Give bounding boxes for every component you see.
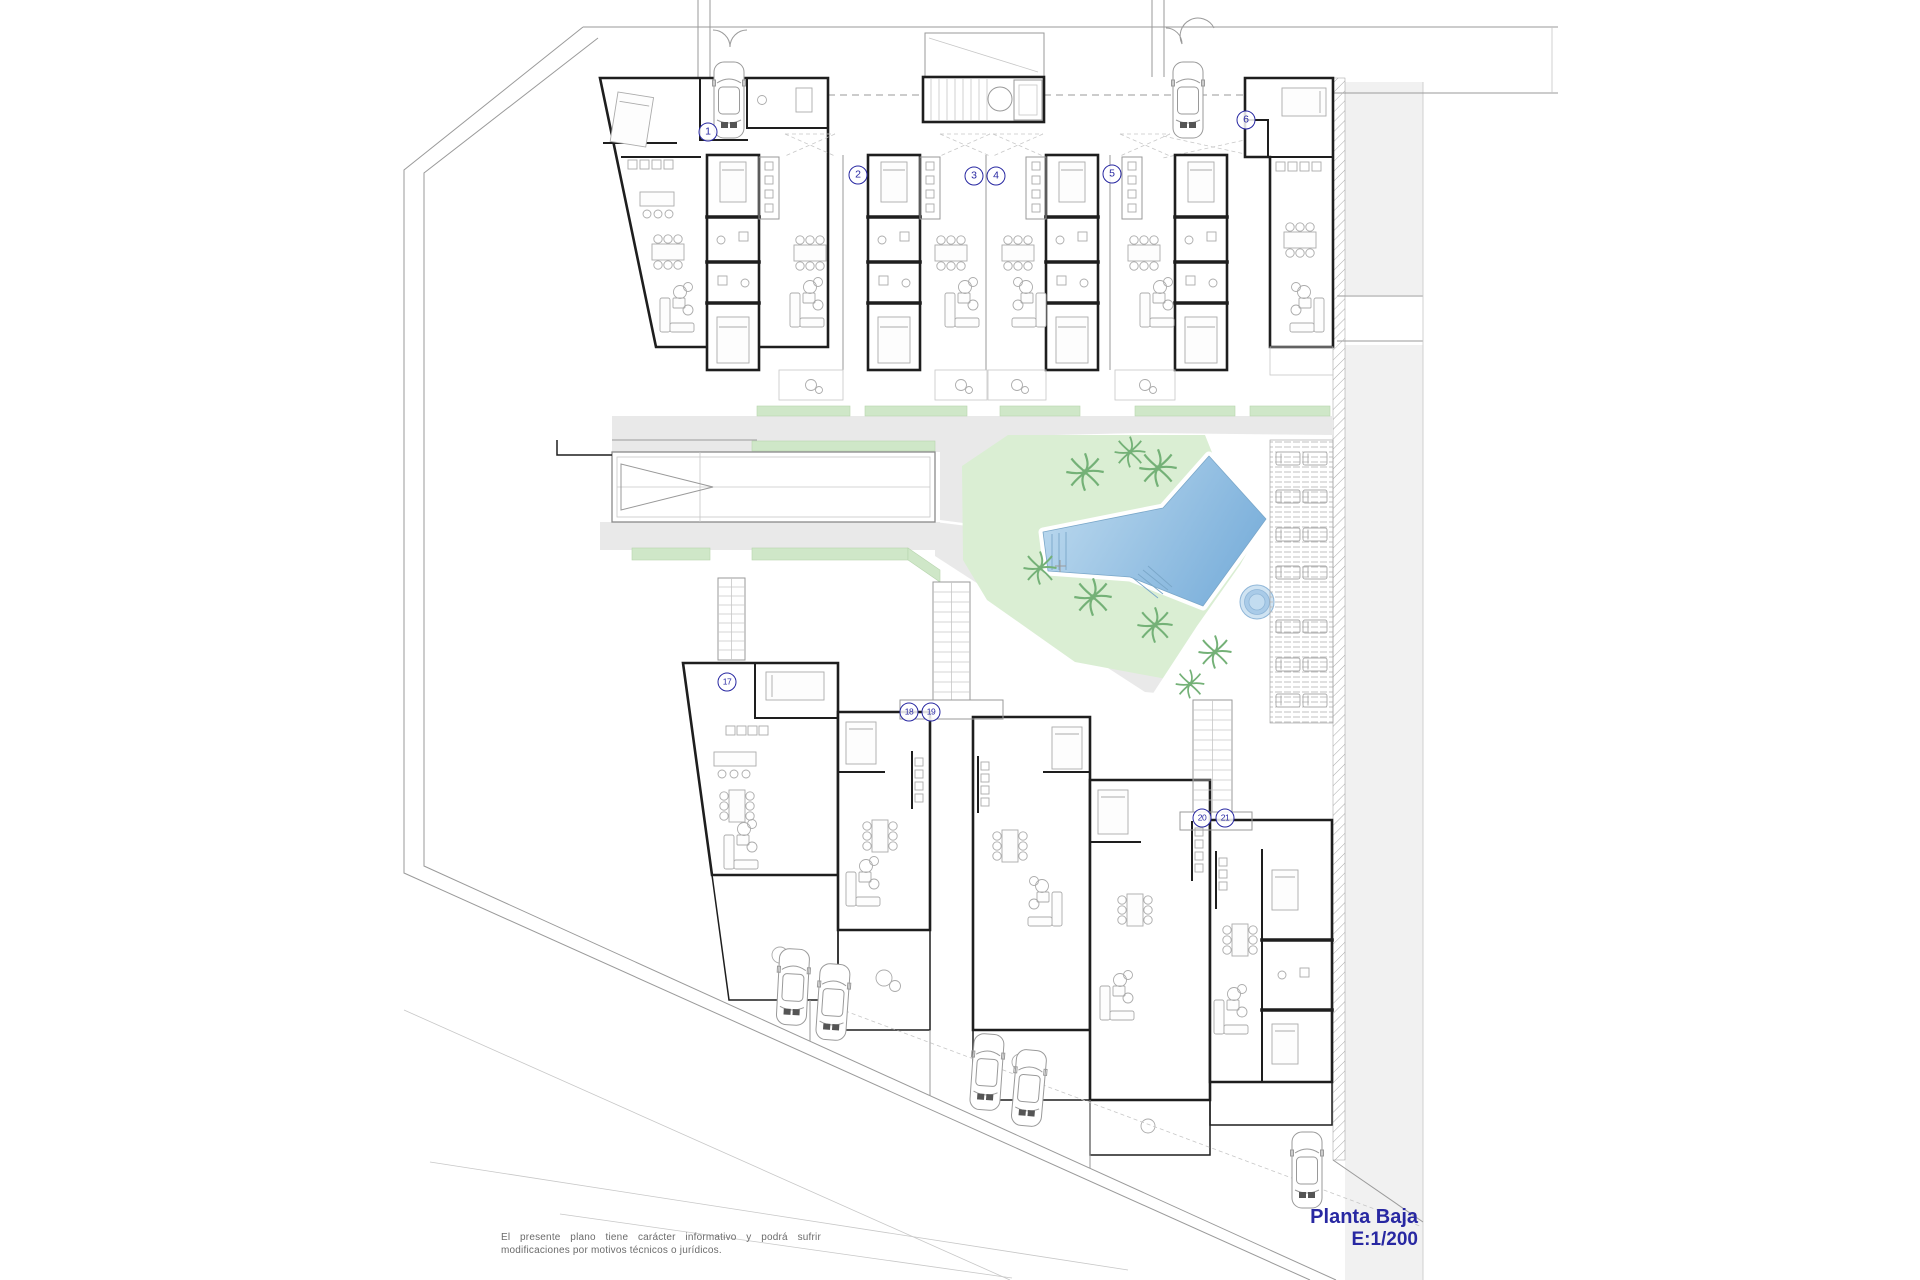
site-plan-drawing: [0, 0, 1920, 1280]
unit-20: [1090, 780, 1210, 1155]
car-icon: [774, 948, 811, 1026]
unit-badge-4: 4: [987, 167, 1006, 186]
unit-badge-21: 21: [1216, 809, 1235, 828]
stair-17: [718, 578, 745, 660]
unit-badge-19: 19: [922, 703, 941, 722]
stair-18-19: [900, 582, 1003, 719]
unit-6: [1245, 78, 1333, 375]
sun-lounger-deck: [1270, 440, 1333, 723]
unit-21: [1210, 820, 1332, 1125]
spa-circle: [1240, 585, 1274, 619]
car-icon: [968, 1033, 1006, 1111]
garage-door-arc: [713, 30, 747, 47]
unit-badge-1: 1: [699, 123, 718, 142]
car-icon: [1009, 1049, 1048, 1128]
unit-badge-18: 18: [900, 703, 919, 722]
unit-18: [838, 712, 930, 1030]
garage-ramp: [557, 440, 935, 522]
car-icon: [1172, 62, 1205, 138]
car-icon: [814, 963, 852, 1041]
page-title: Planta Baja: [1148, 1206, 1418, 1228]
title-block: Planta Baja E:1/200: [1148, 1206, 1418, 1252]
bottom-units: [683, 663, 1332, 1155]
unit-badge-6: 6: [1237, 111, 1256, 130]
stair-core: [923, 33, 1044, 122]
scale-label: E:1/200: [1148, 1228, 1418, 1252]
unit-badge-3: 3: [965, 167, 984, 186]
unit-17: [683, 663, 838, 1000]
unit-badge-2: 2: [849, 166, 868, 185]
disclaimer-text: El presente plano tiene carácter informa…: [501, 1232, 821, 1257]
unit-badge-20: 20: [1193, 809, 1212, 828]
garage-door-arc: [1166, 18, 1214, 44]
car-icon: [713, 62, 746, 138]
floorplan-canvas: 1234561718192021 El presente plano tiene…: [0, 0, 1920, 1280]
neighbor-plots: [1337, 82, 1423, 1280]
unit-badge-17: 17: [718, 673, 737, 692]
plot-wall-hatch: [1333, 78, 1345, 1160]
car-icon: [1291, 1132, 1324, 1208]
unit-badge-5: 5: [1103, 165, 1122, 184]
